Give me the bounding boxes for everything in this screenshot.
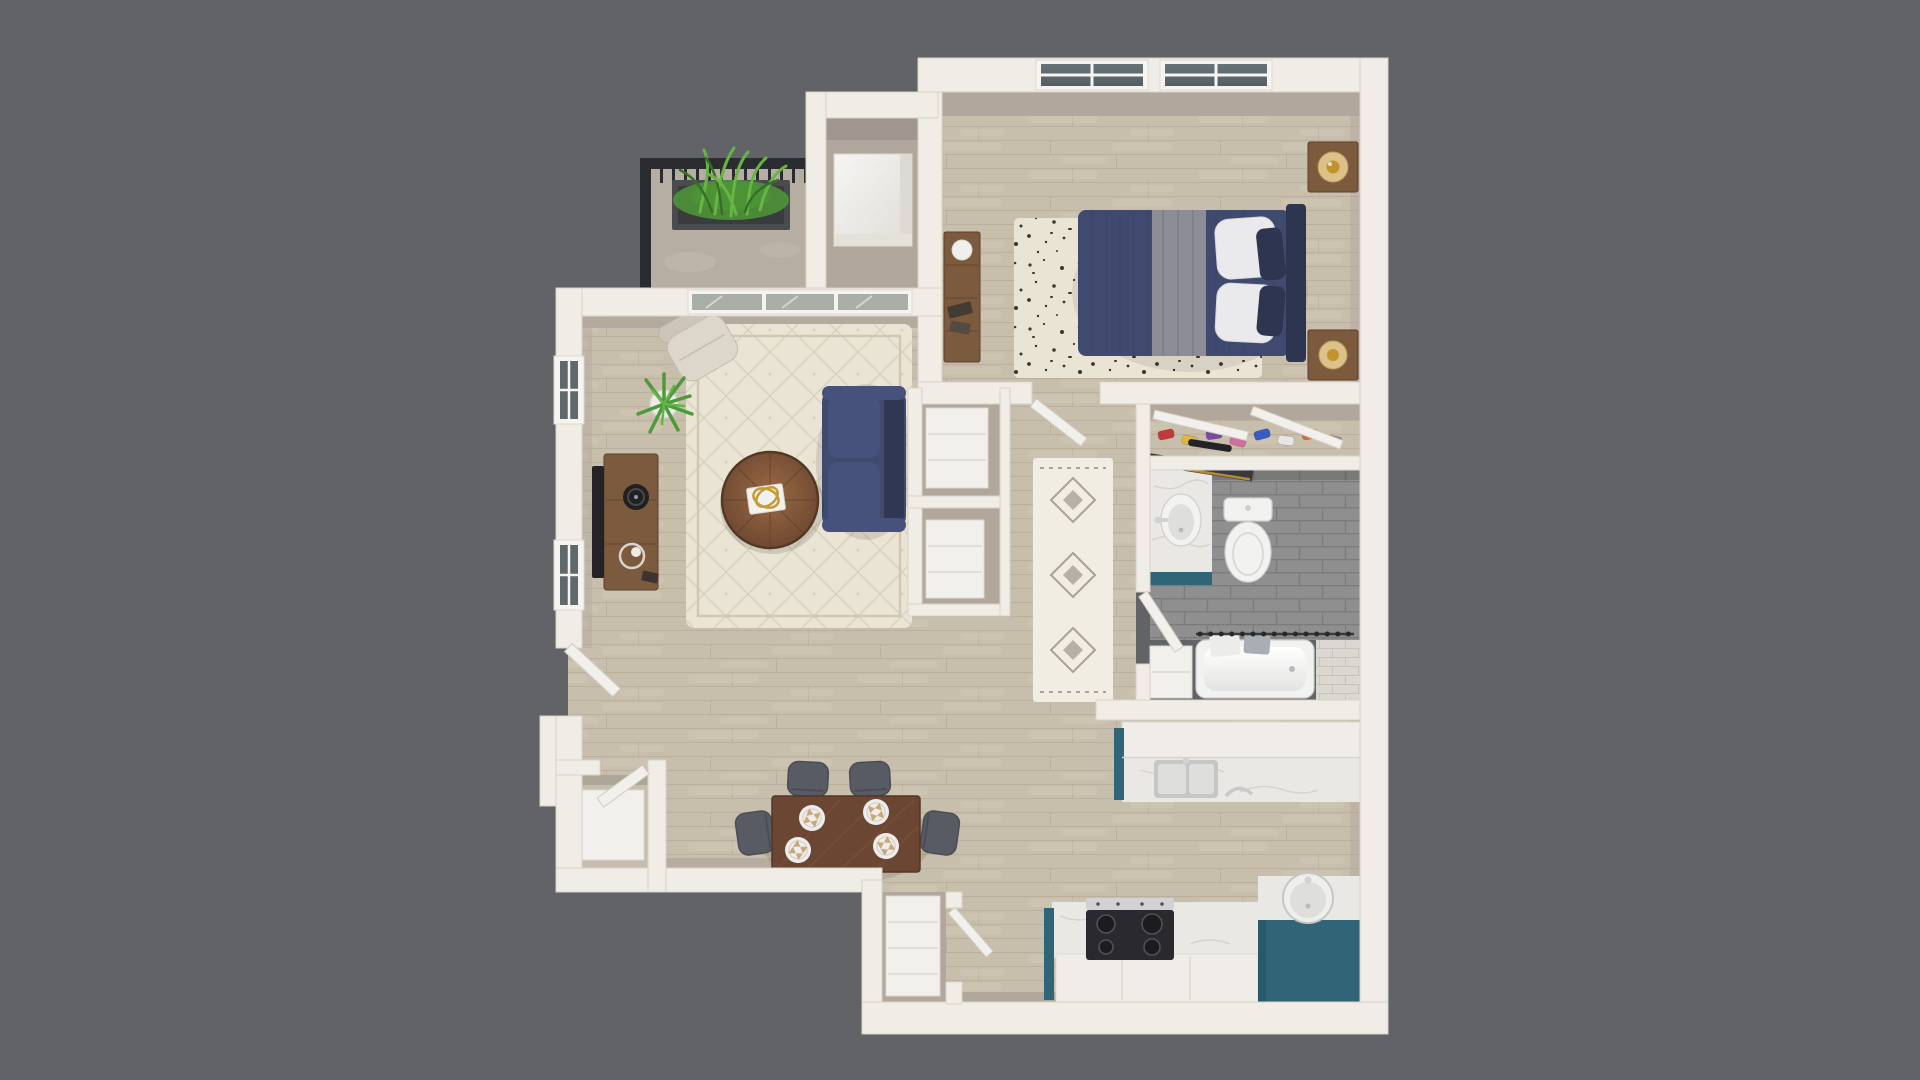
wall-pantry-east-bottom bbox=[946, 982, 962, 1004]
bathroom bbox=[1141, 439, 1360, 700]
bedroom-dresser bbox=[944, 232, 980, 362]
bathroom-vanity bbox=[1150, 470, 1212, 585]
hallway-runner-rug bbox=[1033, 458, 1113, 702]
nightstand-south bbox=[1308, 330, 1358, 380]
kitchen-peninsula bbox=[1114, 722, 1360, 802]
tub-towel-white bbox=[1209, 633, 1241, 658]
nightstand-north bbox=[1308, 142, 1358, 192]
vanity-teal-cabinet bbox=[1150, 572, 1212, 585]
wall-bath-north bbox=[1136, 456, 1360, 470]
corner-sink-faucet bbox=[1305, 877, 1312, 884]
wall-bedroom-north bbox=[918, 58, 1388, 92]
tv-screen bbox=[592, 466, 604, 578]
toilet bbox=[1224, 498, 1272, 582]
balcony-railing-left bbox=[640, 158, 651, 288]
wall-coat-east bbox=[648, 760, 666, 892]
wall-bottom-left bbox=[556, 868, 882, 892]
sofa-arm-top bbox=[822, 386, 906, 400]
wall-closets-east bbox=[1000, 388, 1010, 616]
wall-east bbox=[1360, 58, 1388, 1034]
dining-chair-2 bbox=[849, 761, 891, 797]
living-window-2 bbox=[554, 540, 584, 610]
cooktop-range bbox=[1086, 898, 1174, 960]
bed-headboard bbox=[1286, 204, 1306, 362]
linen-shelf-unit-2 bbox=[926, 520, 984, 598]
bedroom-window-2 bbox=[1160, 60, 1272, 90]
tub-drain bbox=[1289, 666, 1295, 672]
tv-console bbox=[592, 454, 659, 590]
breakfast-bar bbox=[1122, 722, 1360, 760]
bedroom-closet bbox=[1150, 404, 1360, 456]
place-setting-3 bbox=[785, 837, 811, 863]
sofa-seat-cushion-2 bbox=[828, 462, 880, 524]
wall-pantry-east-top bbox=[946, 892, 962, 908]
wall-utility-west bbox=[806, 92, 826, 304]
wall-bottom bbox=[862, 1002, 1388, 1034]
living-window-1 bbox=[554, 356, 584, 424]
linen-shelf-unit-1 bbox=[926, 408, 988, 488]
wall-coat-north bbox=[556, 760, 600, 775]
pantry bbox=[882, 892, 946, 1002]
sink-faucet bbox=[1183, 758, 1190, 765]
coffee-table bbox=[722, 452, 818, 548]
toilet-bowl bbox=[1225, 522, 1271, 582]
wall-bath-west-upper bbox=[1136, 404, 1150, 592]
wall-west-bump bbox=[540, 716, 556, 806]
bed-pillow-navy-2 bbox=[1256, 285, 1286, 337]
sliding-glass-door bbox=[688, 290, 912, 314]
bathtub bbox=[1196, 633, 1314, 698]
place-setting-2 bbox=[863, 799, 889, 825]
tub-tile-surround bbox=[1316, 640, 1360, 700]
tub-towel-gray bbox=[1243, 633, 1270, 655]
balcony bbox=[640, 148, 812, 288]
range-teal-end bbox=[1044, 908, 1054, 1000]
wall-closets-south bbox=[908, 604, 1010, 616]
range-counter-front bbox=[1056, 954, 1258, 1002]
wall-bedroom-south-b bbox=[1100, 382, 1360, 404]
corner-round-sink bbox=[1283, 873, 1333, 923]
kitchen-range-counter bbox=[1044, 898, 1262, 1002]
wall-west-lower bbox=[556, 716, 582, 872]
dining-chair-3 bbox=[734, 810, 775, 857]
pantry-shelves bbox=[886, 896, 940, 996]
dresser-decor-vase bbox=[952, 240, 972, 260]
bed-pillow-navy-1 bbox=[1255, 227, 1286, 281]
hallway bbox=[1033, 458, 1113, 702]
place-setting-1 bbox=[799, 805, 825, 831]
dining-chair-1 bbox=[787, 761, 829, 797]
sofa-back-cushions bbox=[884, 394, 904, 524]
wall-closets-mid bbox=[908, 496, 1010, 508]
wall-bedroom-west bbox=[918, 92, 942, 404]
sofa-arm-bottom bbox=[822, 518, 906, 532]
sofa-seat-cushion-1 bbox=[828, 396, 880, 458]
wall-pantry-west bbox=[862, 880, 882, 1008]
bed bbox=[1078, 204, 1306, 362]
peninsula-teal-end bbox=[1114, 728, 1124, 800]
sofa bbox=[822, 386, 906, 532]
wall-south-mid bbox=[1096, 700, 1360, 720]
wall-bedroom-south-a bbox=[918, 382, 1032, 404]
dining-chair-4 bbox=[919, 810, 960, 857]
double-sink bbox=[1154, 758, 1218, 799]
floorplan-render bbox=[0, 0, 1920, 1080]
utility-closet bbox=[826, 118, 918, 288]
kitchen-corner-unit bbox=[1258, 873, 1360, 1002]
place-setting-4 bbox=[873, 833, 899, 859]
record-player bbox=[623, 484, 649, 510]
dining-table bbox=[772, 796, 920, 872]
bedroom-window-1 bbox=[1036, 60, 1148, 90]
